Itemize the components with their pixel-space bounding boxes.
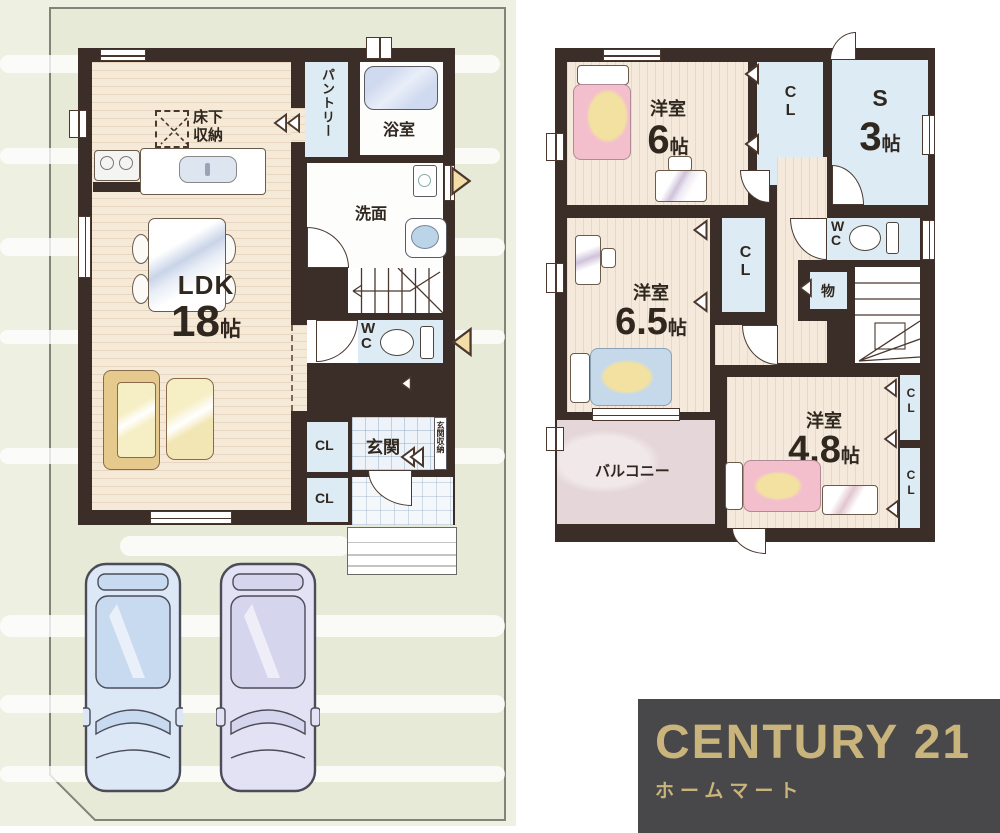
washing-machine-icon [413,165,437,197]
wc-label-1f: WC [361,321,378,352]
vent-triangle-icon [451,166,471,196]
brand-logo: CENTURY 21 ホームマート [638,699,1000,833]
faucet-icon [205,163,210,176]
window-icon [603,49,661,61]
kitchen-island [140,148,266,195]
slide-door-icon [274,112,287,134]
window-icon [366,37,392,59]
toilet-icon-2f [849,222,899,256]
balcony-label: バルコニー [595,460,670,481]
ldk-room-label: LDK 18帖 [153,272,259,345]
slide-door-icon [745,134,759,154]
bathtub-icon [364,66,438,110]
slide-door-icon [883,430,898,448]
bed [590,348,672,406]
ottoman [166,378,214,460]
vent-triangle-icon [452,327,472,357]
underfloor-storage-box [155,110,189,148]
bedroom6-unit: 帖 [670,137,689,158]
entrance-steps [347,527,457,575]
brand-name: CENTURY 21 [655,719,1000,767]
slide-door-icon [287,112,300,134]
closet-2f-right-lower-label: CL [904,468,918,498]
door-arc [830,32,856,60]
slide-door-icon [885,500,900,518]
floor-plan-page: 床下収納 LDK 18帖 パントリー 浴室 洗面 [0,0,1000,833]
slide-door-icon [693,292,708,312]
bed-headboard [577,65,629,85]
bed [743,460,821,512]
slide-door-icon [799,279,812,297]
service-room-label: S 3帖 [840,86,920,158]
window-icon [546,133,564,161]
window-icon [922,220,935,260]
washbasin-icon [405,218,447,258]
ldk-open-boundary [291,325,307,411]
service-unit: 帖 [882,134,901,155]
slide-door-icon [693,220,708,240]
closet-2f-top-label: CL [781,84,799,120]
bed-headboard [725,462,743,510]
car [216,560,320,795]
service-name: S [840,86,920,110]
closet-1f-upper-label: CL [315,437,334,453]
bedroom6-label: 洋室 6帖 [618,100,718,161]
bedroom65-size: 6.5 [615,301,668,343]
window-icon [922,115,935,155]
ground-highlight [120,536,350,556]
closet-2f-right-upper-label: CL [904,386,918,416]
window-icon [546,427,564,451]
brand-subtitle: ホームマート [655,776,1000,803]
bedroom65-unit: 帖 [668,318,687,339]
car [83,560,183,795]
underfloor-storage-label: 床下収納 [193,109,229,145]
bedroom65-label: 洋室 6.5帖 [603,284,699,343]
ldk-size: 18 [171,297,220,346]
bath-label: 浴室 [383,116,415,140]
desk [822,485,878,515]
stairs-2f [855,267,920,363]
slide-door-icon [883,379,898,397]
ldk-name: LDK [153,272,259,299]
slide-door-icon [745,64,759,84]
window-icon [78,216,91,278]
genkan-storage-label: 玄関収納 [435,421,446,453]
sofa [103,370,160,470]
stairs-1f [348,268,443,313]
desk-chair [601,248,616,268]
window-icon [69,110,87,138]
bed-headboard [570,353,590,403]
slide-door-icon [398,376,414,391]
desk [655,170,707,202]
service-size: 3 [859,115,881,159]
bedroom48-unit: 帖 [841,446,860,467]
door-arc [732,528,766,554]
floor1-building: 床下収納 LDK 18帖 パントリー 浴室 洗面 [78,48,455,525]
window-icon [100,49,146,61]
wc-label-2f: WC [831,219,847,248]
ldk-unit: 帖 [220,318,241,341]
desk [575,235,601,285]
closet-1f-lower-label: CL [315,490,334,506]
storage-label: 物 [821,281,835,301]
window-icon [150,511,232,524]
washroom-label: 洗面 [355,200,387,224]
genkan-label: 玄関 [366,433,400,458]
window-icon [546,263,564,293]
bedroom6-name: 洋室 [618,100,718,119]
porch-wall-stub [412,470,448,477]
stove-icon [94,150,140,181]
slide-door-icon [410,447,424,467]
floor2-building: 洋室 6帖 CL S 3帖 CL WC 物 [555,48,935,542]
toilet-icon-1f [380,326,434,360]
bedroom6-size: 6 [647,118,669,162]
pantry-label: パントリー [318,68,337,138]
closet-2f-mid-label: CL [736,244,754,280]
window-icon [592,408,680,421]
